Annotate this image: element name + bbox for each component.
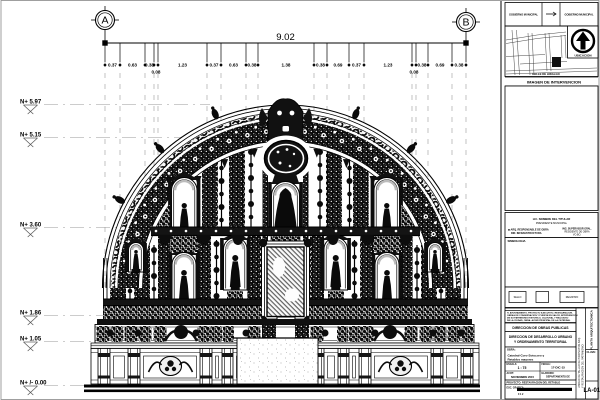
svg-text:SIMBOLOGIA: SIMBOLOGIA — [508, 239, 526, 243]
svg-text:0.37: 0.37 — [210, 63, 219, 68]
svg-text:ESCALA:: ESCALA: — [507, 363, 518, 366]
svg-text:N+ 1.86: N+ 1.86 — [20, 310, 42, 316]
svg-text:N+ 5.15: N+ 5.15 — [20, 132, 42, 138]
svg-text:LIC. NOMBRE DEL TITULAR: LIC. NOMBRE DEL TITULAR — [533, 217, 571, 221]
svg-text:FECHA:: FECHA: — [542, 363, 551, 366]
svg-text:A: A — [101, 15, 108, 27]
svg-text:0.69: 0.69 — [334, 63, 343, 68]
svg-text:PRESIDENTE MUNICIPAL: PRESIDENTE MUNICIPAL — [536, 221, 568, 225]
svg-text:PROYECTO: RESTAURACION DEL RET: PROYECTO: RESTAURACION DEL RETABLO — [507, 382, 561, 385]
svg-text:0.63: 0.63 — [229, 63, 238, 68]
svg-text:0.63: 0.63 — [128, 63, 137, 68]
svg-text:UBICACION: UBICACION — [575, 54, 592, 58]
svg-text:PLANTA ARQUITECTONICA: PLANTA ARQUITECTONICA — [590, 309, 594, 349]
svg-text:17-DIC-15: 17-DIC-15 — [551, 366, 565, 370]
svg-text:IMAGEN DE INTERVENCION: IMAGEN DE INTERVENCION — [527, 80, 581, 85]
svg-text:DE LA CIUDAD, OBRA: ALTAR PRIN: DE LA CIUDAD, OBRA: ALTAR PRINCIPAL DE L… — [507, 319, 571, 322]
svg-text:0.69: 0.69 — [436, 63, 445, 68]
svg-text:0.38: 0.38 — [455, 63, 464, 68]
svg-text:N+ 5.97: N+ 5.97 — [20, 99, 42, 105]
svg-text:1.38: 1.38 — [282, 63, 291, 68]
svg-text:DIRECCION DE DESARROLLO URBANO: DIRECCION DE DESARROLLO URBANO — [509, 335, 573, 339]
svg-text:0.38: 0.38 — [145, 63, 154, 68]
svg-text:1.23: 1.23 — [384, 63, 393, 68]
svg-text:B: B — [462, 17, 469, 29]
svg-text:DIR. INFRAESTRUCTURA: DIR. INFRAESTRUCTURA — [511, 232, 542, 235]
svg-text:N+ /- 0.00: N+ /- 0.00 — [20, 380, 47, 386]
svg-text:0.37: 0.37 — [108, 63, 117, 68]
svg-text:GOBIERNO MUNICIPAL: GOBIERNO MUNICIPAL — [509, 13, 538, 17]
svg-text:0.08: 0.08 — [152, 70, 161, 75]
svg-text:DEPARTAMENTO DE: DEPARTAMENTO DE — [546, 376, 570, 379]
svg-text:Retablos mayores: Retablos mayores — [508, 358, 534, 362]
svg-text:LA-01: LA-01 — [583, 388, 600, 394]
svg-text:0.38: 0.38 — [418, 63, 427, 68]
svg-text:SELLO: SELLO — [514, 296, 522, 299]
svg-text:CLAVE:: CLAVE: — [587, 350, 597, 354]
svg-text:NOVIEMBRE 2015: NOVIEMBRE 2015 — [511, 375, 535, 379]
svg-text:CALLE DE HIDALGO: CALLE DE HIDALGO — [532, 72, 560, 76]
svg-text:0.38: 0.38 — [316, 63, 325, 68]
svg-text:VO.BO.: VO.BO. — [573, 234, 582, 237]
svg-text:0.38: 0.38 — [248, 63, 257, 68]
svg-text:REGISTRO: REGISTRO — [566, 296, 579, 299]
svg-text:9.02: 9.02 — [276, 32, 295, 43]
svg-text:0.08: 0.08 — [410, 70, 419, 75]
svg-text:0.37: 0.37 — [352, 63, 361, 68]
svg-text:1 : 75: 1 : 75 — [518, 366, 527, 370]
svg-text:N+ 3.60: N+ 3.60 — [20, 222, 42, 228]
svg-text:0 1 2: 0 1 2 — [518, 393, 524, 396]
svg-text:N+ 1.05: N+ 1.05 — [20, 336, 42, 342]
svg-text:OBRA:: OBRA: — [507, 348, 516, 352]
svg-text:ACOT:: ACOT: — [507, 372, 515, 375]
svg-text:Y ORDENAMIENTO TERRITORIAL: Y ORDENAMIENTO TERRITORIAL — [514, 340, 567, 344]
svg-text:DIRECCION DE OBRAS PUBLICAS: DIRECCION DE OBRAS PUBLICAS — [512, 326, 569, 330]
svg-text:1.23: 1.23 — [178, 63, 187, 68]
svg-text:Y RESTAURACION DEL PATRIMONIO: Y RESTAURACION DEL PATRIMONIO — [582, 344, 585, 388]
svg-text:GOBIERNO MUNICIPAL: GOBIERNO MUNICIPAL — [564, 13, 593, 17]
